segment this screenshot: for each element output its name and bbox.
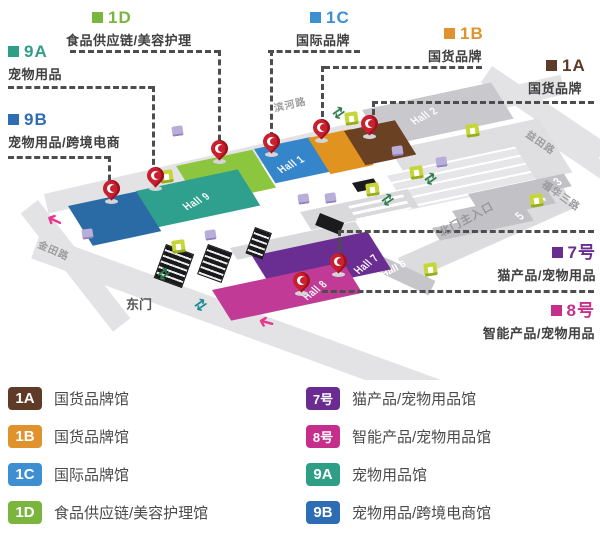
legend-badge: 8号 bbox=[306, 425, 340, 448]
annotation-label: 国际品牌 bbox=[296, 30, 350, 49]
connector-line bbox=[8, 86, 154, 89]
annotation-label: 智能产品/宠物用品 bbox=[462, 323, 595, 342]
gate-icon bbox=[171, 125, 183, 136]
legend-square-icon bbox=[8, 46, 19, 57]
legend-item-9a: 9A 宠物用品馆 bbox=[306, 462, 427, 486]
gate-icon bbox=[423, 262, 438, 277]
legend-square-icon bbox=[310, 12, 321, 23]
annotation-code: 1C bbox=[326, 8, 350, 27]
legend-badge: 1D bbox=[8, 501, 42, 524]
annotation-label: 猫产品/宠物用品 bbox=[478, 265, 596, 284]
legend-item-7: 7号 猫产品/宠物用品馆 bbox=[306, 386, 476, 410]
legend-badge: 1B bbox=[8, 425, 42, 448]
annotation-code: 1A bbox=[562, 56, 586, 75]
connector-line bbox=[338, 230, 594, 233]
location-pin-icon bbox=[329, 253, 349, 279]
annotation-code: 9B bbox=[24, 110, 48, 129]
annotation-9b: 9B 宠物用品/跨境电商 bbox=[8, 110, 120, 151]
location-pin-icon bbox=[262, 133, 282, 159]
gate-icon bbox=[465, 123, 480, 138]
legend-badge: 1A bbox=[8, 387, 42, 410]
connector-line bbox=[372, 101, 594, 104]
annotation-label: 食品供应链/美容护理 bbox=[66, 30, 192, 49]
location-pin-icon bbox=[210, 140, 230, 166]
annotation-label: 宠物用品/跨境电商 bbox=[8, 132, 120, 151]
hall-2-label: Hall 2 bbox=[408, 106, 441, 128]
annotation-label: 国货品牌 bbox=[528, 78, 586, 97]
connector-line bbox=[270, 50, 273, 138]
legend-item-9b: 9B 宠物用品/跨境电商馆 bbox=[306, 500, 491, 524]
connector-line bbox=[322, 290, 594, 293]
connector-line bbox=[218, 50, 221, 150]
road-label-binhe: 滨河路 bbox=[272, 93, 308, 115]
annotation-label: 宠物用品 bbox=[8, 64, 62, 83]
annotation-9a: 9A 宠物用品 bbox=[8, 42, 62, 83]
legend-label: 宠物用品馆 bbox=[352, 464, 427, 485]
legend-square-icon bbox=[551, 305, 562, 316]
legend-item-1a: 1A 国货品牌馆 bbox=[8, 386, 129, 410]
annotation-code: 7号 bbox=[568, 243, 596, 262]
legend-badge: 9B bbox=[306, 501, 340, 524]
expo-floor-map-page: Hall 2 3 4 5 Hall 1 Hall 9 Hall 6 Hall 7… bbox=[0, 0, 600, 545]
legend-label: 智能产品/宠物用品馆 bbox=[352, 426, 491, 447]
legend-label: 食品供应链/美容护理馆 bbox=[54, 502, 208, 523]
east-gate-label: 东门 bbox=[126, 294, 152, 313]
legend-label: 国货品牌馆 bbox=[54, 426, 129, 447]
hall-9-label: Hall 9 bbox=[181, 191, 214, 213]
gate-icon bbox=[391, 145, 403, 156]
gate-icon bbox=[297, 193, 309, 204]
location-pin-icon bbox=[146, 167, 166, 193]
annotation-8: 8号 智能产品/宠物用品 bbox=[462, 296, 595, 342]
location-pin-icon bbox=[312, 119, 332, 145]
legend-label: 宠物用品/跨境电商馆 bbox=[352, 502, 491, 523]
location-pin-icon bbox=[360, 115, 380, 141]
annotation-code: 8号 bbox=[567, 301, 595, 320]
gate-icon bbox=[529, 193, 544, 208]
gate-icon bbox=[435, 156, 447, 167]
annotation-1a: 1A 国货品牌 bbox=[528, 56, 586, 97]
annotation-1c: 1C 国际品牌 bbox=[296, 8, 350, 49]
location-pin-icon bbox=[292, 272, 312, 298]
legend-badge: 9A bbox=[306, 463, 340, 486]
connector-line bbox=[70, 50, 220, 53]
connector-line bbox=[8, 156, 110, 159]
annotation-code: 9A bbox=[24, 42, 48, 61]
legend-item-1b: 1B 国货品牌馆 bbox=[8, 424, 129, 448]
connector-line bbox=[152, 86, 155, 174]
location-pin-icon bbox=[102, 180, 122, 206]
annotation-7: 7号 猫产品/宠物用品 bbox=[478, 238, 596, 284]
connector-line bbox=[324, 66, 482, 69]
annotation-code: 1D bbox=[108, 8, 132, 27]
gate-icon bbox=[365, 182, 380, 197]
legend-label: 国际品牌馆 bbox=[54, 464, 129, 485]
gate-icon bbox=[324, 192, 336, 203]
legend-square-icon bbox=[92, 12, 103, 23]
gate-icon bbox=[204, 229, 216, 240]
legend-item-1d: 1D 食品供应链/美容护理馆 bbox=[8, 500, 208, 524]
entrance-ramp-icon bbox=[197, 244, 232, 283]
gate-icon bbox=[81, 228, 93, 239]
legend-square-icon bbox=[444, 28, 455, 39]
legend-badge: 1C bbox=[8, 463, 42, 486]
legend-label: 国货品牌馆 bbox=[54, 388, 129, 409]
legend-label: 猫产品/宠物用品馆 bbox=[352, 388, 476, 409]
legend-square-icon bbox=[8, 114, 19, 125]
venue-map: Hall 2 3 4 5 Hall 1 Hall 9 Hall 6 Hall 7… bbox=[0, 0, 600, 380]
legend-badge: 7号 bbox=[306, 387, 340, 410]
gate-icon bbox=[171, 239, 186, 254]
annotation-1d: 1D 食品供应链/美容护理 bbox=[66, 8, 192, 49]
legend-square-icon bbox=[552, 247, 563, 258]
legend-square-icon bbox=[546, 60, 557, 71]
annotation-1b: 1B 国货品牌 bbox=[428, 24, 484, 65]
hall-5-label: 5 bbox=[513, 210, 528, 223]
legend-item-8: 8号 智能产品/宠物用品馆 bbox=[306, 424, 491, 448]
connector-line bbox=[321, 66, 324, 126]
annotation-code: 1B bbox=[460, 24, 484, 43]
annotation-label: 国货品牌 bbox=[428, 46, 484, 65]
legend-item-1c: 1C 国际品牌馆 bbox=[8, 462, 129, 486]
hall-7-label: Hall 7 bbox=[352, 253, 382, 277]
connector-line bbox=[268, 50, 360, 53]
